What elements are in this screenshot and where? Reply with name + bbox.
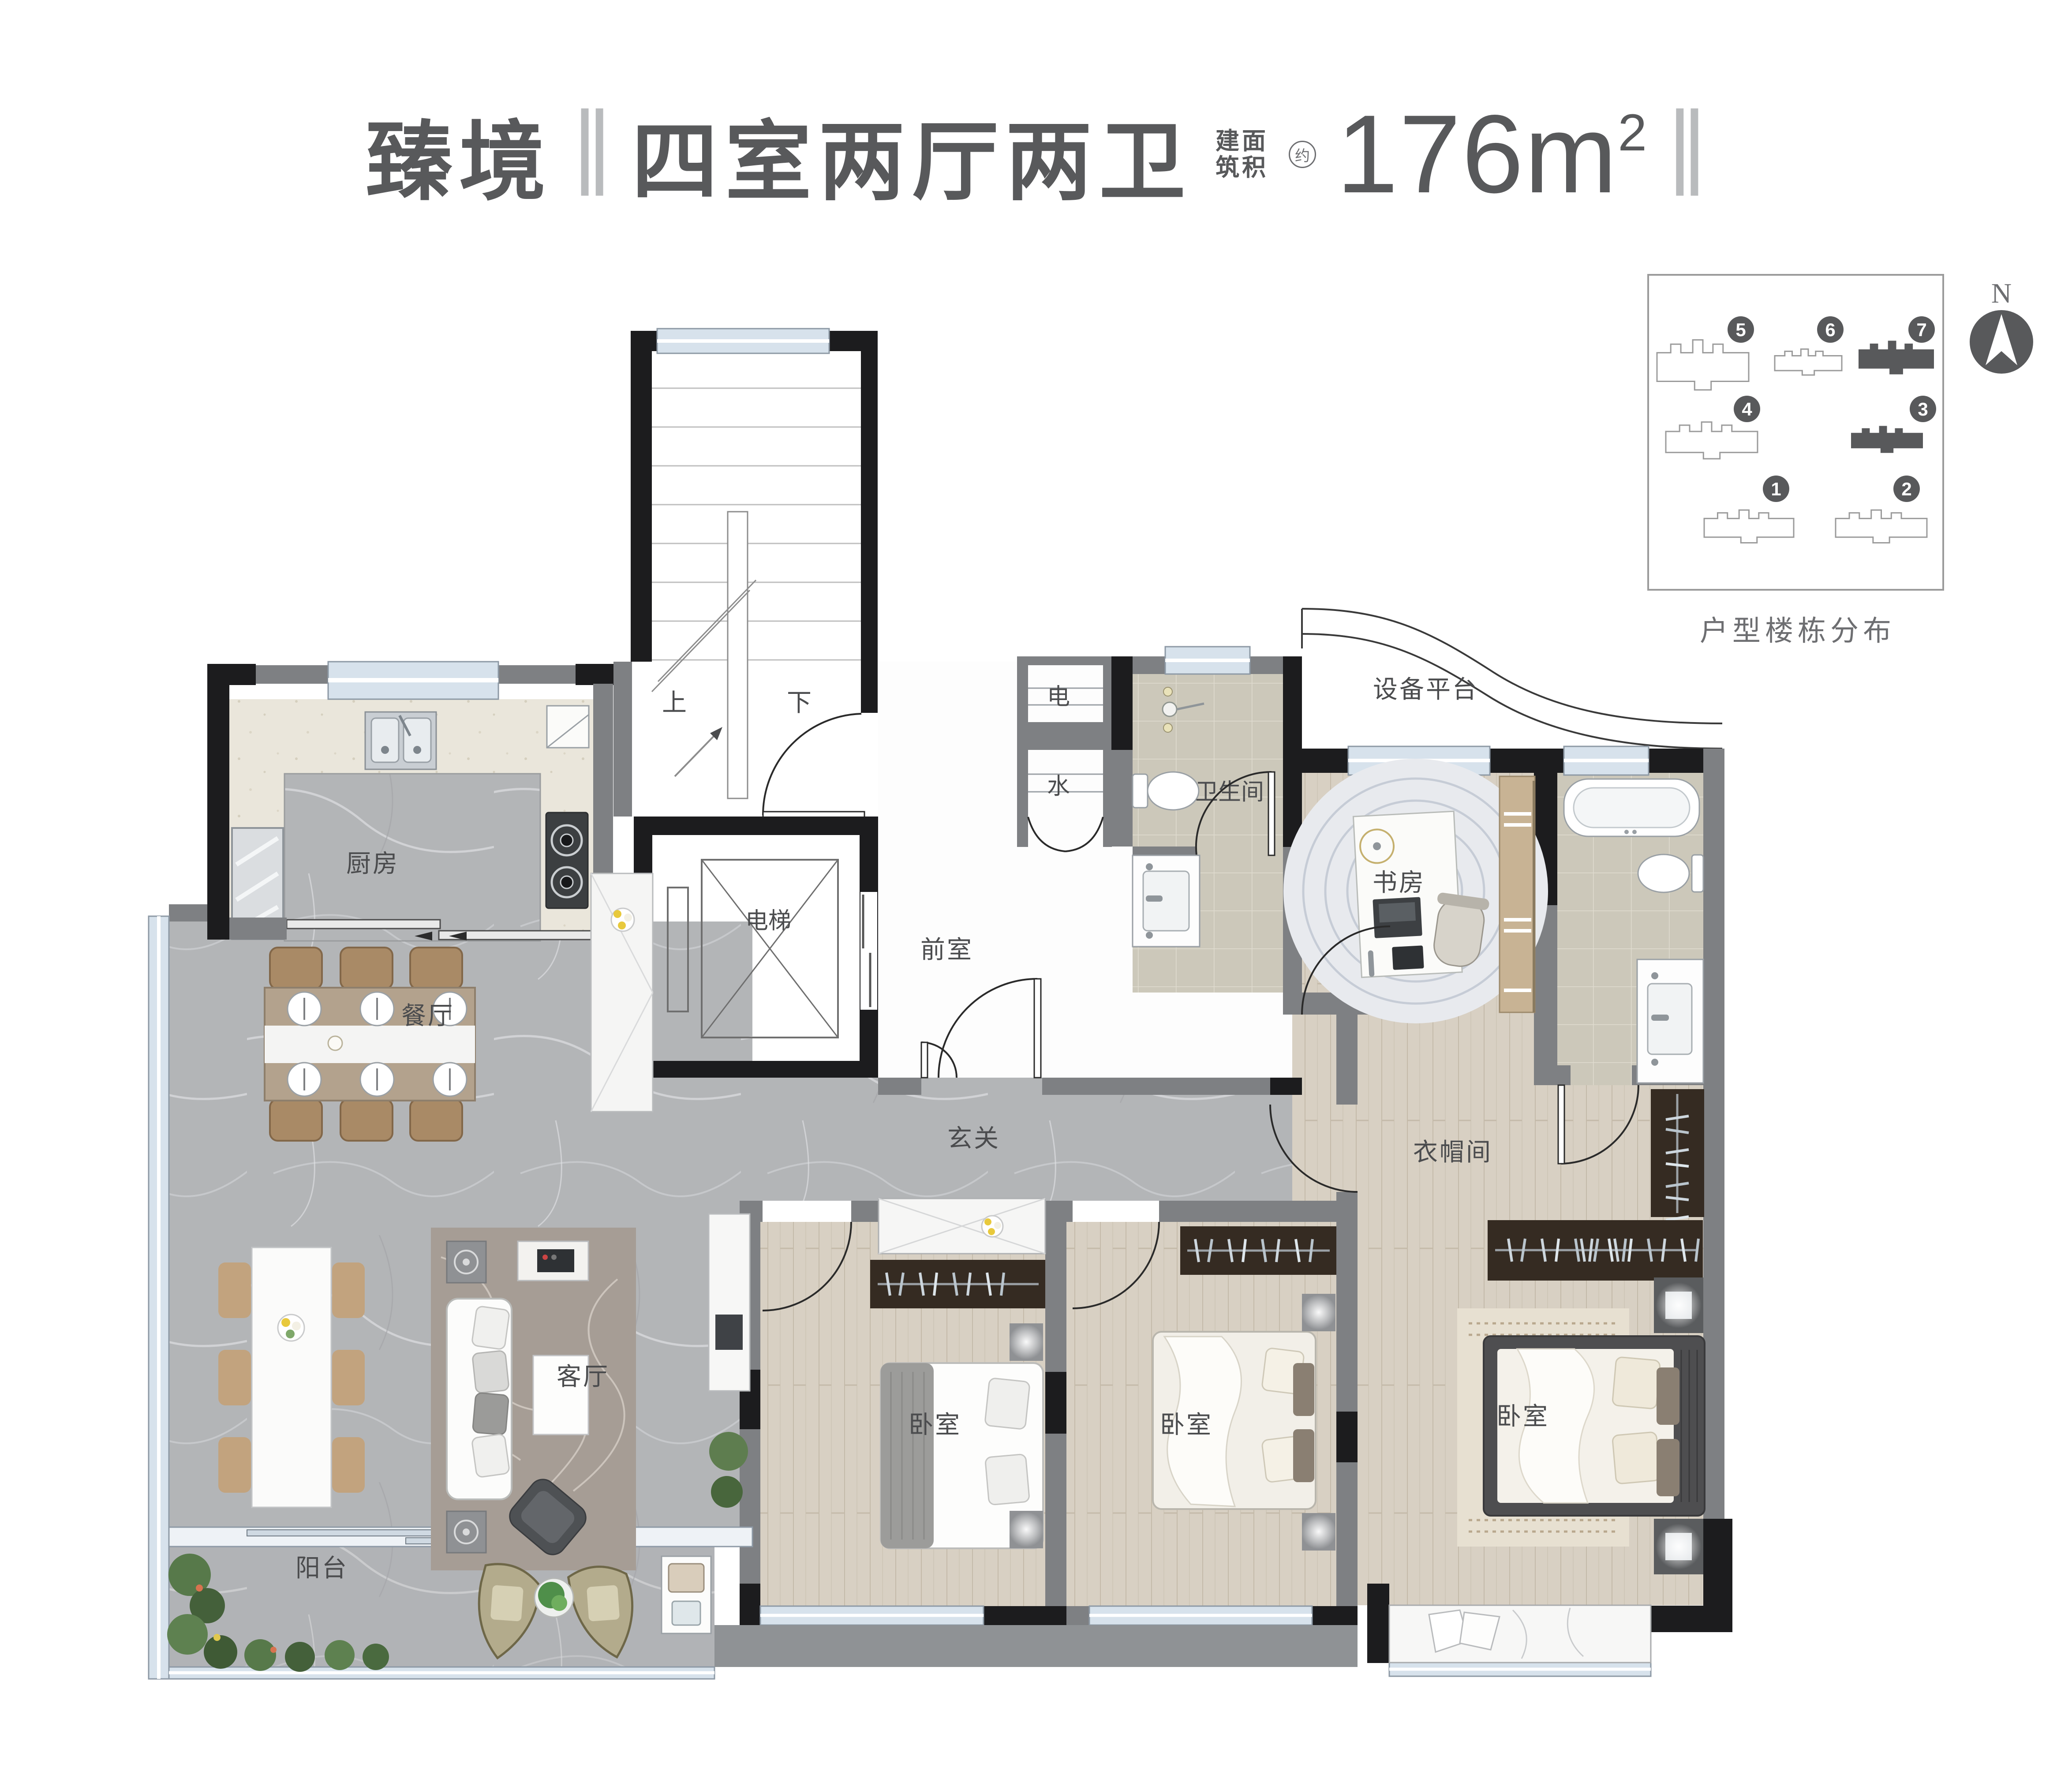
floor-plan: 设备平台 上 下 (0, 0, 2072, 1783)
label-stair-down: 下 (787, 689, 813, 716)
master-bay-window (1389, 1605, 1651, 1663)
sofa (447, 1299, 512, 1499)
title-divider-right-icon: ‖ (1668, 94, 1706, 215)
label-closet: 衣帽间 (1413, 1138, 1492, 1166)
area-label-row1: 建面 (1216, 128, 1268, 154)
balcony-railing (169, 1667, 714, 1679)
stair-divider (728, 512, 748, 798)
north-arrow-icon: N (1970, 277, 2033, 374)
bedroom2-window (1089, 1606, 1312, 1625)
kitchen-sliding-door (287, 920, 440, 929)
shower-icon (1163, 702, 1177, 716)
balcony-cabinet (662, 1556, 711, 1633)
dining-area: 餐厅 (265, 948, 475, 1141)
building-legend: 5 6 7 4 3 1 2 户型楼栋分布 N (1648, 275, 2033, 647)
toilet-tank (1133, 774, 1148, 808)
area-sup: 2 (1618, 107, 1648, 159)
exterior-slab-fill (714, 1625, 1358, 1667)
label-elevator: 电梯 (745, 908, 791, 934)
label-bedroom1: 卧室 (909, 1411, 961, 1438)
layout-name: 四室两厅两卫 (632, 92, 1193, 217)
approx-badge: 约 (1289, 141, 1316, 168)
title-divider-left-icon: ‖ (573, 94, 611, 215)
kitchen-island (284, 774, 540, 941)
hall-console (591, 873, 653, 1112)
left-bay-window (149, 916, 169, 1679)
master-bay-window-glass (1389, 1663, 1651, 1676)
bookshelf (1500, 776, 1535, 1012)
building-5-number: 5 (1735, 319, 1746, 340)
building-1-number: 1 (1771, 479, 1781, 499)
stair-floor (652, 351, 861, 817)
guest-vanity (1133, 855, 1200, 947)
stair-window (657, 329, 829, 353)
gas-stove (546, 813, 588, 908)
area-unit: m (1524, 99, 1618, 210)
side-table-top (447, 1241, 486, 1283)
building-2-number: 2 (1901, 479, 1911, 499)
side-table-bottom (447, 1511, 486, 1553)
label-study: 书房 (1373, 869, 1425, 896)
label-kitchen: 厨房 (346, 850, 399, 877)
area-label-row2: 筑积 (1216, 154, 1268, 181)
master-vanity (1637, 959, 1703, 1083)
equipment-platform (1302, 609, 1722, 749)
floorplan-page: 臻境 ‖ 四室两厅两卫 建面 筑积 约 176m2 ‖ (0, 0, 2072, 1783)
master-bath-window (1564, 746, 1649, 775)
building-7-number: 7 (1916, 319, 1926, 340)
bathroom-door-leaf (1268, 772, 1275, 855)
page-title: 臻境 ‖ 四室两厅两卫 建面 筑积 约 176m2 ‖ (0, 75, 2072, 234)
kitchen-window (328, 662, 498, 699)
project-name: 臻境 (366, 92, 553, 217)
building-4-number: 4 (1742, 399, 1752, 420)
label-bathroom: 卫生间 (1195, 779, 1264, 805)
label-stair-up: 上 (662, 689, 688, 716)
area-value: 176m2 (1336, 99, 1648, 210)
window-table (218, 1247, 365, 1507)
bedroom1-niche (879, 1199, 1045, 1254)
toilet (1148, 772, 1199, 810)
label-electric-shaft: 电 (1047, 684, 1070, 710)
label-master-bedroom: 卧室 (1496, 1402, 1549, 1430)
master-bath-door-leaf (1558, 1085, 1564, 1164)
master-toilet (1638, 854, 1689, 892)
entry-door-leaf (1034, 979, 1041, 1078)
area-number: 176 (1336, 99, 1524, 210)
building-6-number: 6 (1825, 319, 1835, 340)
label-dining: 餐厅 (401, 1002, 454, 1030)
table-runner (265, 1026, 475, 1063)
label-living: 客厅 (557, 1363, 610, 1390)
label-balcony: 阳台 (295, 1554, 348, 1582)
label-front-room: 前室 (920, 936, 973, 963)
hall-floor (752, 1078, 1302, 1201)
label-equipment-platform: 设备平台 (1373, 675, 1479, 703)
area-label: 建面 筑积 (1216, 128, 1268, 181)
north-label: N (1991, 277, 2012, 309)
tv-console (518, 1241, 588, 1281)
building-3-number: 3 (1918, 399, 1928, 420)
label-hall: 玄关 (947, 1124, 1000, 1152)
bath-window (1165, 647, 1250, 674)
label-water-shaft: 水 (1047, 774, 1070, 799)
legend-caption: 户型楼栋分布 (1700, 615, 1896, 647)
study: 书房 (1283, 759, 1548, 1023)
bedroom1-window (760, 1606, 984, 1625)
label-bedroom2: 卧室 (1160, 1411, 1213, 1438)
